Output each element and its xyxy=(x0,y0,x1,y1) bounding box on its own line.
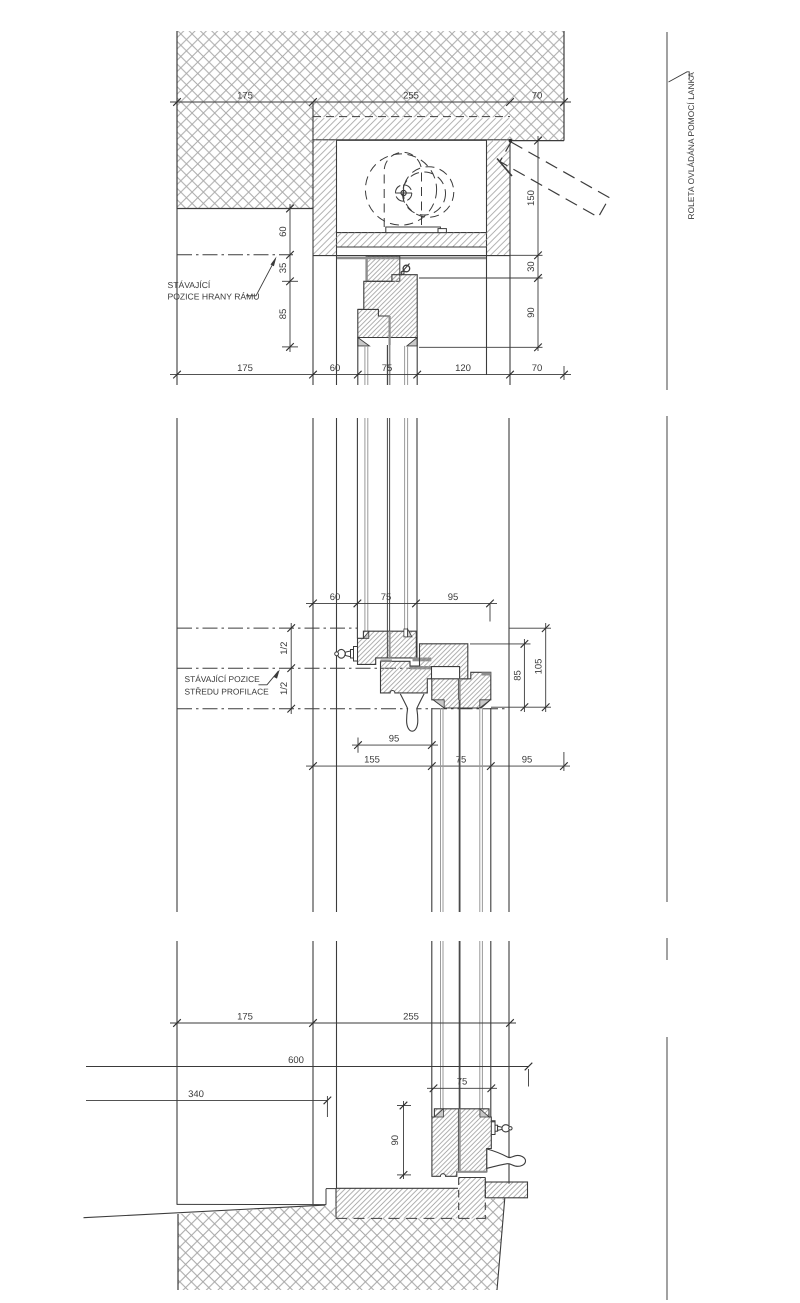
svg-text:STŘEDU PROFILACE: STŘEDU PROFILACE xyxy=(185,687,270,697)
svg-text:30: 30 xyxy=(526,261,537,272)
svg-text:60: 60 xyxy=(330,592,341,603)
svg-text:175: 175 xyxy=(237,363,253,374)
svg-text:75: 75 xyxy=(382,363,393,374)
svg-text:1/2: 1/2 xyxy=(279,682,290,695)
svg-text:ROLETA OVLÁDÁNA POMOCÍ LANKA: ROLETA OVLÁDÁNA POMOCÍ LANKA xyxy=(686,72,696,220)
svg-text:95: 95 xyxy=(448,592,459,603)
svg-text:75: 75 xyxy=(456,755,467,766)
svg-text:155: 155 xyxy=(364,755,380,766)
svg-text:70: 70 xyxy=(532,91,543,102)
svg-text:1/2: 1/2 xyxy=(279,642,290,655)
svg-text:75: 75 xyxy=(381,592,392,603)
svg-text:85: 85 xyxy=(512,670,523,681)
svg-text:175: 175 xyxy=(237,91,253,102)
svg-text:POZICE HRANY RÁMU: POZICE HRANY RÁMU xyxy=(168,292,260,302)
svg-text:255: 255 xyxy=(403,1011,419,1022)
svg-text:STÁVAJÍCÍ POZICE: STÁVAJÍCÍ POZICE xyxy=(185,674,261,684)
svg-text:STÁVAJÍCÍ: STÁVAJÍCÍ xyxy=(168,280,211,290)
svg-text:85: 85 xyxy=(278,309,289,320)
svg-text:70: 70 xyxy=(532,363,543,374)
svg-text:35: 35 xyxy=(278,263,289,274)
svg-text:120: 120 xyxy=(455,363,471,374)
svg-text:255: 255 xyxy=(403,91,419,102)
svg-text:600: 600 xyxy=(288,1055,304,1066)
svg-text:340: 340 xyxy=(188,1089,204,1100)
svg-text:60: 60 xyxy=(330,363,341,374)
svg-text:95: 95 xyxy=(389,734,400,745)
svg-text:105: 105 xyxy=(534,659,545,675)
svg-text:60: 60 xyxy=(278,226,289,237)
svg-text:90: 90 xyxy=(390,1135,401,1146)
svg-text:150: 150 xyxy=(526,190,537,206)
svg-text:175: 175 xyxy=(237,1011,253,1022)
svg-text:90: 90 xyxy=(526,307,537,318)
svg-text:75: 75 xyxy=(457,1077,468,1088)
svg-text:95: 95 xyxy=(522,755,533,766)
